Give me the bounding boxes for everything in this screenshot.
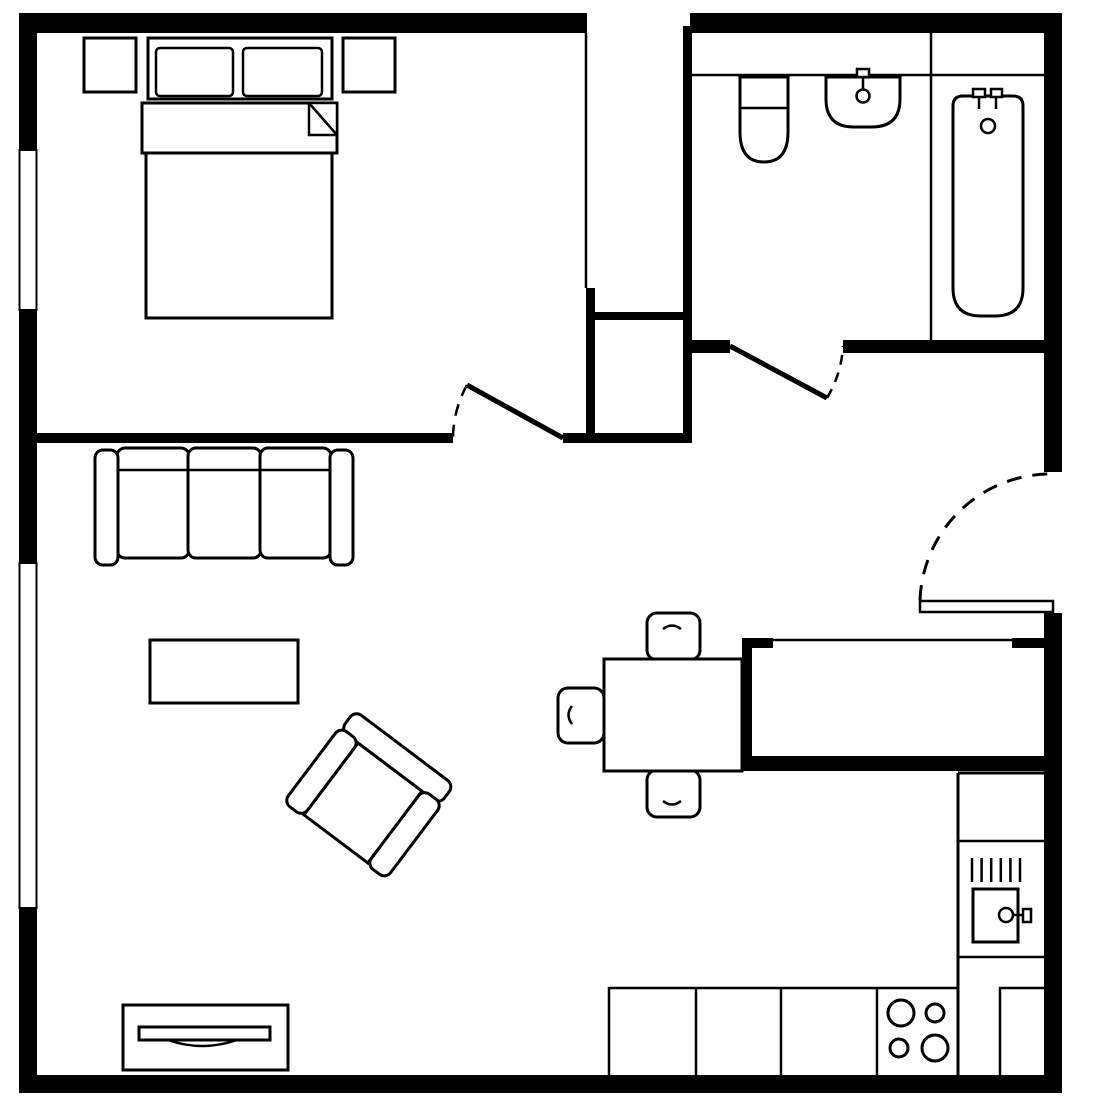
dining-chair-left[interactable] xyxy=(558,688,604,743)
closet-wall-top xyxy=(589,312,687,320)
right-wall-lower xyxy=(1044,613,1062,1093)
left-wall-upper xyxy=(19,13,37,150)
entry-door[interactable] xyxy=(920,474,1053,612)
coffee-table[interactable] xyxy=(150,640,298,703)
closet-wall-left xyxy=(586,288,595,443)
right-wall-upper xyxy=(1044,13,1062,472)
toilet[interactable] xyxy=(740,77,788,162)
bathroom-sink[interactable] xyxy=(826,69,900,127)
bathroom-wall-main xyxy=(843,340,1044,353)
floor-plan-svg xyxy=(0,0,1094,1113)
living-room-window[interactable] xyxy=(20,563,37,908)
bedroom-furniture xyxy=(84,38,395,318)
nightstand-left[interactable] xyxy=(84,38,136,92)
dining-chair-top[interactable] xyxy=(647,613,700,660)
counter-wall-bottom xyxy=(742,756,1044,771)
left-wall-lower xyxy=(19,908,37,1093)
double-bed[interactable] xyxy=(142,38,337,318)
bedroom-window[interactable] xyxy=(20,150,37,310)
top-wall-right xyxy=(690,13,1062,33)
bedroom-wall-left-segment xyxy=(19,433,453,443)
kitchen-sink-unit[interactable] xyxy=(972,858,1031,942)
nightstand-right[interactable] xyxy=(343,38,395,92)
dining-table[interactable] xyxy=(604,659,742,771)
kitchen-corner-cabinet xyxy=(1000,988,1044,1075)
floor-plan-canvas xyxy=(0,0,1094,1113)
bathroom-wall-stub xyxy=(692,340,730,353)
tv-stand[interactable] xyxy=(123,1005,288,1070)
bedroom-door[interactable] xyxy=(453,385,563,438)
top-wall-left xyxy=(19,13,587,33)
hall-wall-vertical xyxy=(683,26,692,443)
doors xyxy=(453,346,1053,612)
sofa[interactable] xyxy=(95,448,353,565)
bedroom-wall-right-segment xyxy=(563,433,692,443)
living-room-furniture xyxy=(95,448,456,1070)
bathroom-fixtures xyxy=(740,69,1023,316)
bathtub[interactable] xyxy=(953,89,1023,316)
dining-chair-bottom[interactable] xyxy=(647,770,700,817)
bathroom-door[interactable] xyxy=(730,346,843,398)
dining-furniture xyxy=(558,613,742,817)
bottom-wall xyxy=(19,1075,1062,1093)
armchair[interactable] xyxy=(284,709,456,879)
stove-burners[interactable] xyxy=(888,1000,948,1061)
